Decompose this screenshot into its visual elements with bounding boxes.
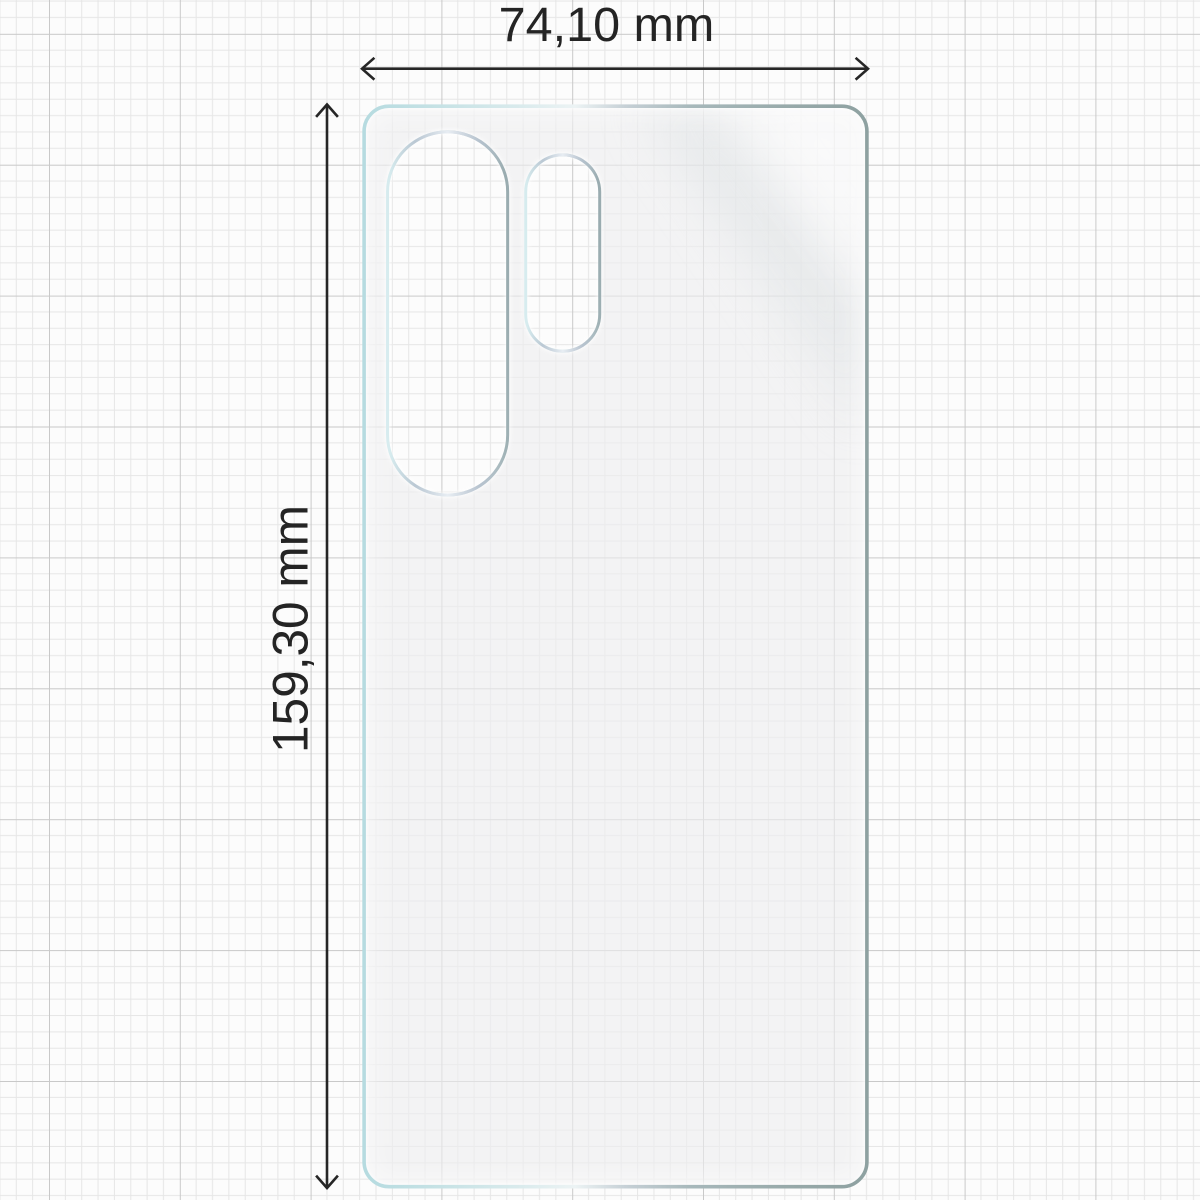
- svg-text:74,10 mm: 74,10 mm: [499, 0, 715, 52]
- svg-text:159,30 mm: 159,30 mm: [263, 505, 319, 753]
